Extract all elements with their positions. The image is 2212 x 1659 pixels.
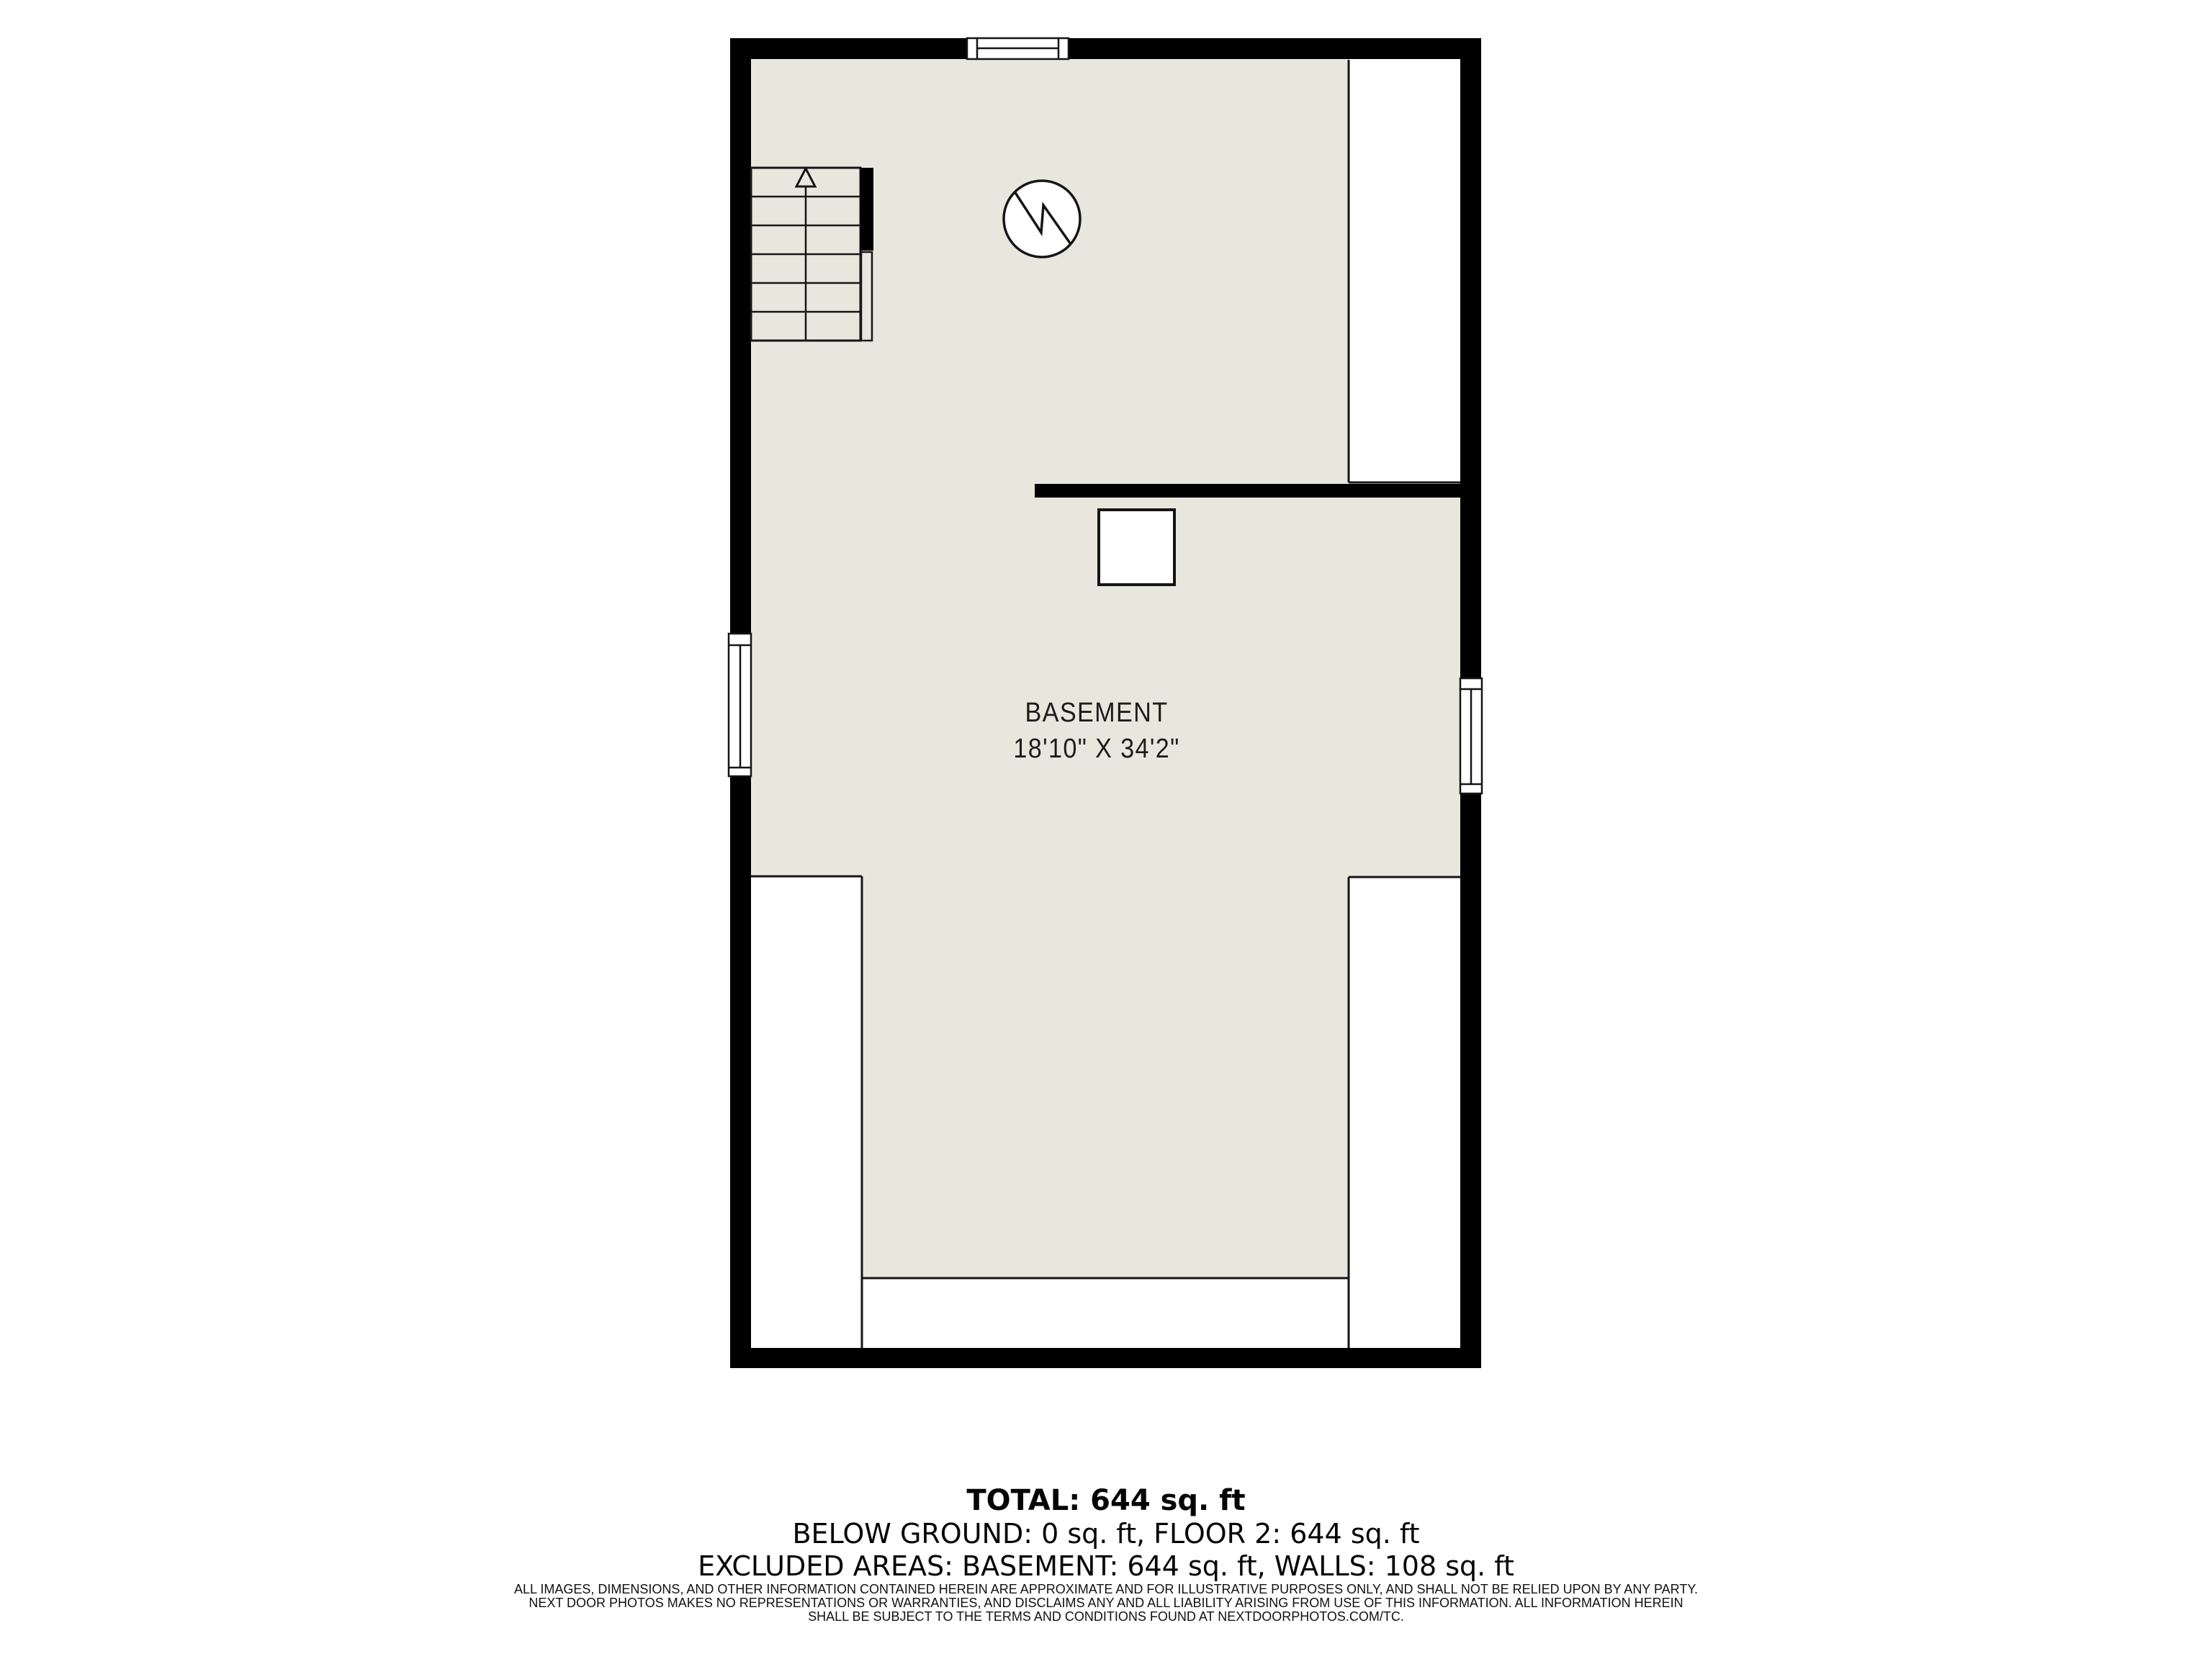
staircase [751, 168, 873, 341]
disclaimer-line-1: ALL IMAGES, DIMENSIONS, AND OTHER INFORM… [0, 1583, 2212, 1596]
summary-total: TOTAL: 644 sq. ft [0, 1484, 2212, 1517]
furnace-icon [1004, 181, 1080, 257]
interior-wall [1035, 484, 1462, 498]
floor-plan-page: BASEMENT 18'10" X 34'2" TOTAL: 644 sq. f… [0, 0, 2212, 1659]
room-dimensions-label: 18'10" X 34'2" [773, 734, 1421, 765]
wall-top [730, 38, 1481, 59]
disclaimer-block: ALL IMAGES, DIMENSIONS, AND OTHER INFORM… [0, 1583, 2212, 1624]
disclaimer-line-3: SHALL BE SUBJECT TO THE TERMS AND CONDIT… [0, 1610, 2212, 1624]
floor-plan-drawing [0, 0, 2212, 1659]
summary-areas: BELOW GROUND: 0 sq. ft, FLOOR 2: 644 sq.… [0, 1518, 2212, 1550]
chimney-box [1099, 510, 1174, 585]
window-top [967, 38, 1069, 59]
wall-bottom [730, 1348, 1481, 1368]
stair-side-wall [860, 168, 873, 251]
excluded-notch-bottom-left [751, 876, 862, 1348]
summary-excluded-areas: EXCLUDED AREAS: BASEMENT: 644 sq. ft, WA… [0, 1550, 2212, 1582]
window-right [1460, 678, 1482, 793]
window-left [729, 634, 751, 776]
room-name-label: BASEMENT [773, 698, 1421, 729]
floor-right-lobe [1349, 498, 1461, 877]
stair-railing [861, 252, 872, 341]
disclaimer-line-2: NEXT DOOR PHOTOS MAKES NO REPRESENTATION… [0, 1596, 2212, 1610]
